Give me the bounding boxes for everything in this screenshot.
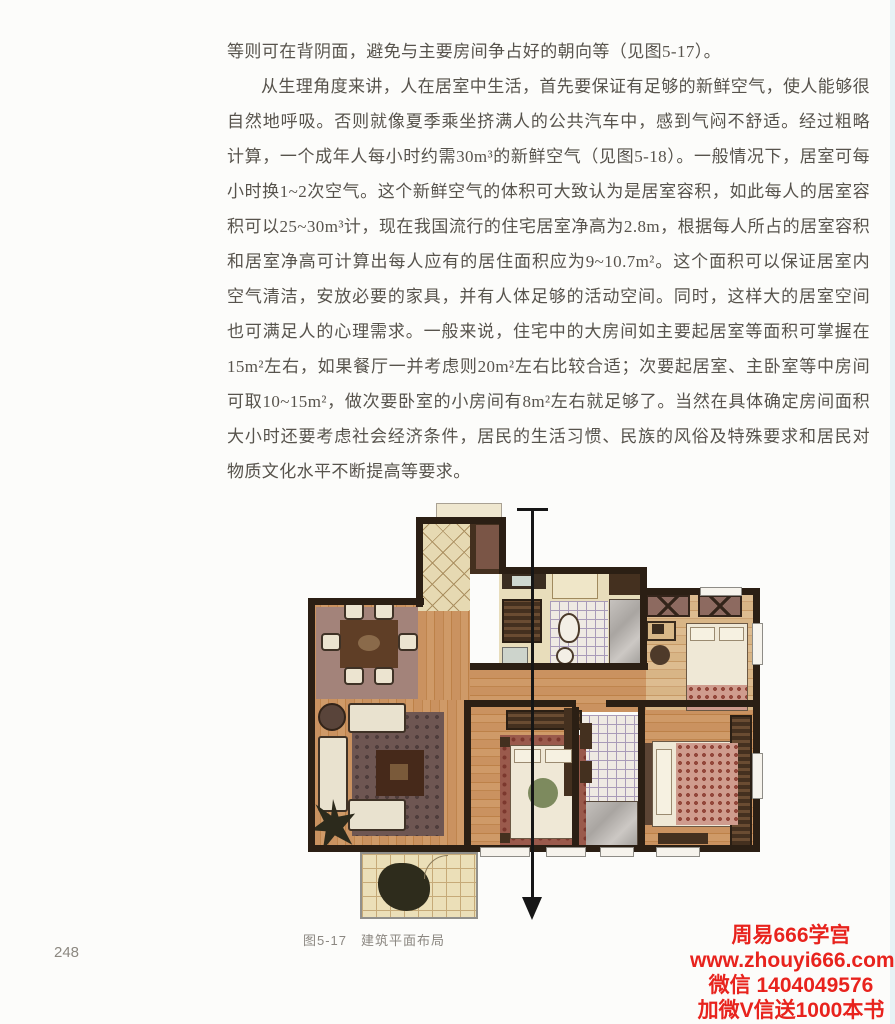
master-bench bbox=[658, 833, 708, 844]
pillow bbox=[514, 749, 541, 763]
dining-chair bbox=[321, 633, 341, 651]
pillow bbox=[656, 749, 672, 815]
wall bbox=[464, 700, 471, 852]
page-number: 248 bbox=[54, 944, 79, 961]
paragraph-continuation: 等则可在背阴面，避免与主要房间争占好的朝向等（见图5-17）。 bbox=[227, 34, 870, 69]
wall bbox=[308, 598, 315, 852]
toilet bbox=[558, 613, 580, 643]
small-bath-shower bbox=[582, 801, 638, 847]
desk-laptop bbox=[652, 624, 664, 634]
coffee-table-deco bbox=[390, 764, 408, 780]
watermark-promo: 加微V信送1000本书 bbox=[690, 998, 892, 1023]
wall bbox=[470, 663, 648, 670]
window bbox=[700, 587, 742, 596]
watermark: 周易666学宫 www.zhouyi666.com 微信 1404049576 … bbox=[690, 923, 892, 1023]
master-headboard bbox=[644, 743, 652, 825]
master-bed-floral-cover bbox=[676, 743, 738, 825]
wall bbox=[499, 517, 506, 574]
dining-chair bbox=[344, 667, 364, 685]
window bbox=[656, 847, 700, 857]
window bbox=[752, 753, 763, 799]
wall bbox=[308, 598, 424, 605]
nightstand bbox=[500, 833, 510, 843]
dining-chair bbox=[374, 667, 394, 685]
wall bbox=[640, 567, 647, 670]
section-line bbox=[531, 508, 534, 899]
wall bbox=[572, 707, 579, 852]
watermark-title: 周易666学宫 bbox=[690, 923, 892, 948]
entry-closet-inner bbox=[476, 525, 500, 569]
side-table-round bbox=[318, 703, 346, 731]
watermark-wechat: 微信 1404049576 bbox=[690, 973, 892, 998]
window bbox=[480, 847, 530, 857]
sofa-bottom bbox=[348, 799, 406, 831]
paragraph-main: 从生理角度来讲，人在居室中生活，首先要保证有足够的新鲜空气，使人能够很自然地呼吸… bbox=[227, 69, 870, 489]
window bbox=[752, 623, 763, 665]
pillow bbox=[719, 627, 744, 641]
bathroom-cabinet bbox=[609, 573, 641, 595]
wall bbox=[499, 567, 647, 574]
shower-stall bbox=[609, 599, 641, 665]
kitchen-island bbox=[502, 599, 542, 643]
bathroom-window-fan bbox=[552, 573, 598, 599]
nightstand bbox=[500, 737, 510, 747]
closet-box bbox=[698, 595, 742, 617]
dining-chair bbox=[398, 633, 418, 651]
window bbox=[600, 847, 634, 857]
section-arrowhead-icon bbox=[522, 897, 542, 920]
body-text: 等则可在背阴面，避免与主要房间争占好的朝向等（见图5-17）。 从生理角度来讲，… bbox=[227, 34, 870, 489]
figure-caption: 图5-17 建筑平面布局 bbox=[303, 930, 445, 949]
small-bath-fixture bbox=[580, 761, 592, 783]
pillow bbox=[545, 749, 572, 763]
floorplan-figure bbox=[306, 503, 764, 937]
wall bbox=[416, 517, 506, 524]
watermark-url: www.zhouyi666.com bbox=[690, 948, 892, 973]
wall bbox=[464, 700, 576, 707]
wall bbox=[638, 707, 645, 852]
scan-edge bbox=[890, 0, 895, 1024]
small-bath-fixture bbox=[580, 723, 592, 749]
pillow bbox=[690, 627, 715, 641]
wall bbox=[606, 700, 753, 707]
closet-box bbox=[646, 595, 690, 617]
sofa-top bbox=[348, 703, 406, 733]
wall bbox=[416, 517, 423, 607]
window bbox=[546, 847, 586, 857]
entry-foyer-tiles bbox=[416, 520, 470, 611]
dining-centerpiece bbox=[358, 635, 380, 651]
desk-chair bbox=[650, 645, 670, 665]
